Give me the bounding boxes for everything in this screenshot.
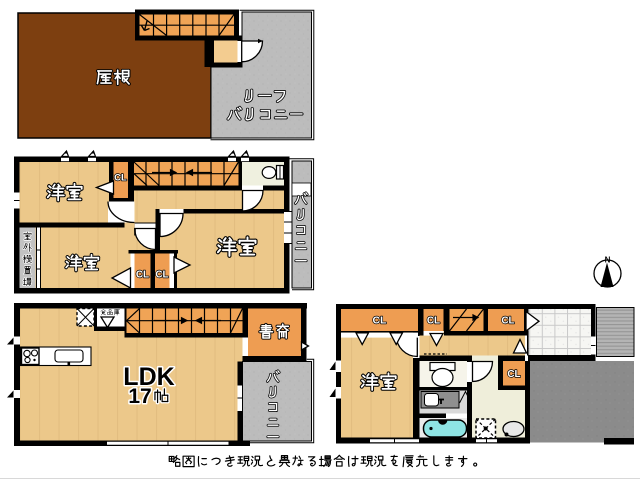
svg-text:17: 17 <box>128 385 151 408</box>
svg-text:CL: CL <box>114 173 127 184</box>
svg-text:N: N <box>605 256 611 265</box>
svg-text:CL: CL <box>501 316 514 327</box>
svg-text:CL: CL <box>155 270 168 281</box>
svg-text:CL: CL <box>507 369 520 380</box>
svg-text:CL: CL <box>427 316 440 327</box>
svg-text:CL: CL <box>136 270 149 281</box>
svg-text:CL: CL <box>373 315 388 327</box>
